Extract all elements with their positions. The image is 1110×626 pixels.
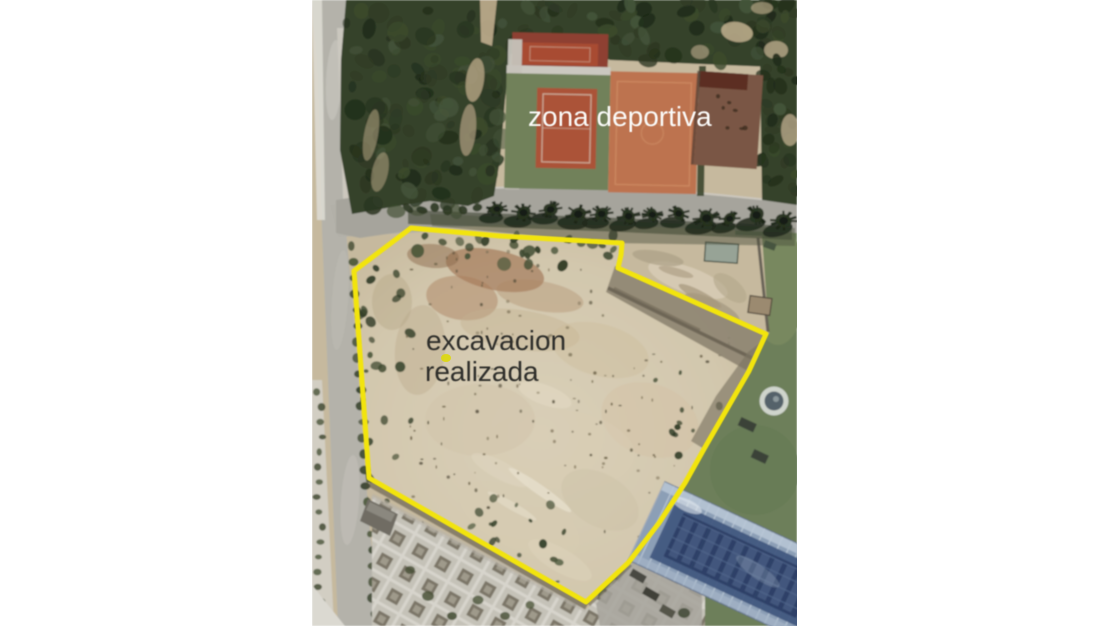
svg-text:realizada: realizada	[425, 356, 539, 387]
svg-text:zona deportiva: zona deportiva	[528, 101, 712, 132]
svg-text:excavacion: excavacion	[426, 325, 566, 356]
